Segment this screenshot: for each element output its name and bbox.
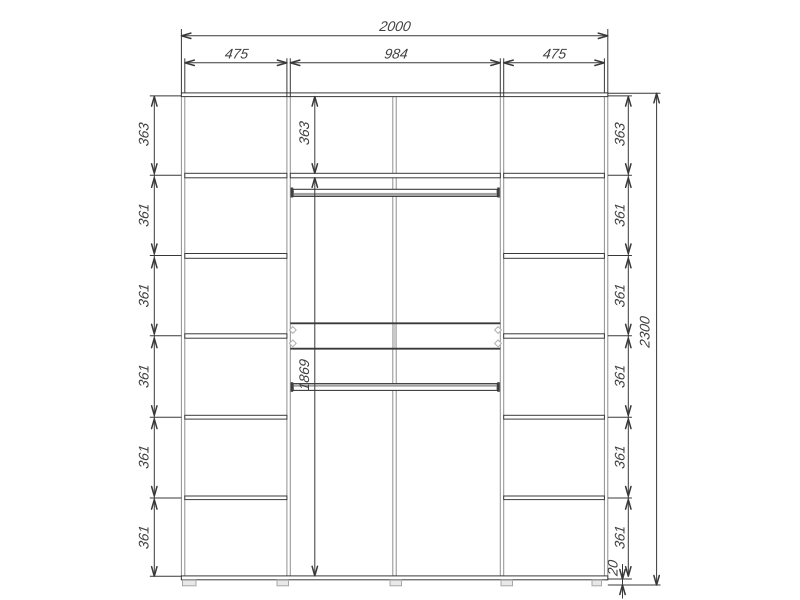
svg-text:361: 361 xyxy=(612,202,628,228)
svg-text:361: 361 xyxy=(136,444,152,470)
svg-text:2300: 2300 xyxy=(637,315,653,350)
svg-text:984: 984 xyxy=(383,46,409,62)
svg-text:361: 361 xyxy=(136,363,152,389)
svg-text:475: 475 xyxy=(542,46,568,62)
svg-text:475: 475 xyxy=(224,46,250,62)
svg-text:361: 361 xyxy=(136,283,152,309)
svg-text:2000: 2000 xyxy=(378,18,413,34)
svg-text:20: 20 xyxy=(605,559,621,578)
svg-text:361: 361 xyxy=(612,283,628,309)
svg-text:1869: 1869 xyxy=(296,358,312,392)
svg-text:361: 361 xyxy=(612,363,628,389)
svg-text:361: 361 xyxy=(136,524,152,550)
svg-text:361: 361 xyxy=(612,524,628,550)
svg-text:363: 363 xyxy=(136,121,152,147)
svg-text:361: 361 xyxy=(612,444,628,470)
svg-text:361: 361 xyxy=(136,202,152,228)
svg-text:363: 363 xyxy=(296,120,312,146)
svg-text:363: 363 xyxy=(612,121,628,147)
